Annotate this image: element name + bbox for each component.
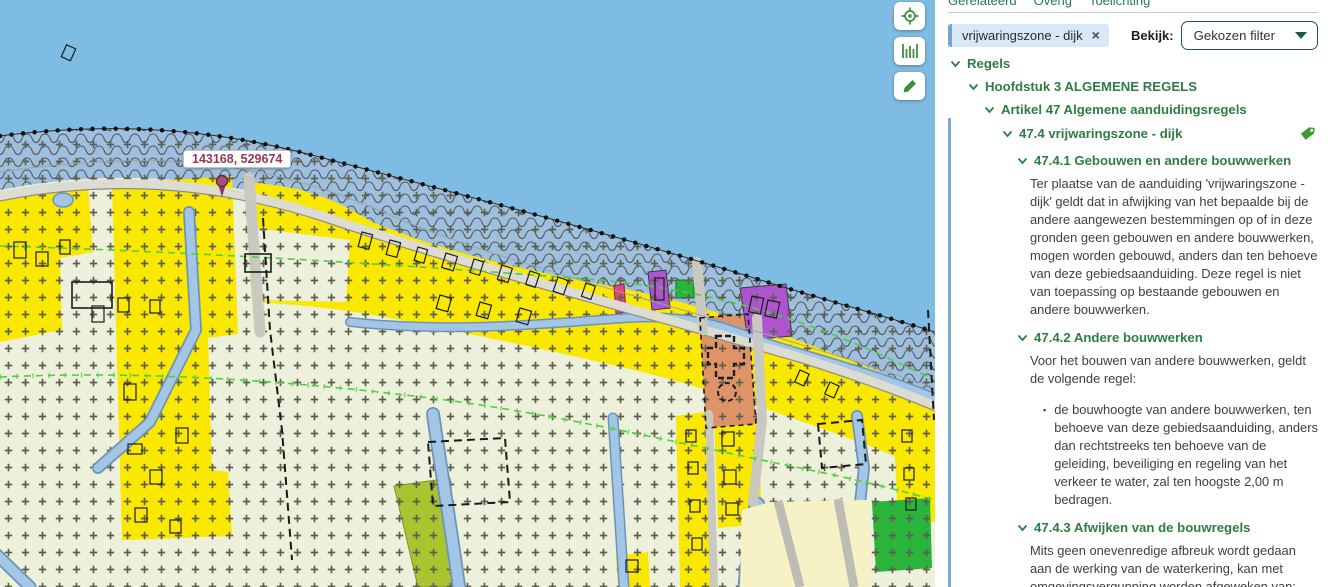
filter-chip-label: vrijwaringszone - dijk [962,28,1083,43]
zoning-map [0,0,935,587]
section-47-4-3-heading[interactable]: 47.4.3 Afwijken van de bouwregels [1017,520,1318,535]
map-toolbar [894,2,925,100]
view-label: Bekijk: [1131,28,1174,43]
profile-chart-icon [901,42,919,60]
section-47-4-2-bullet: ▪ de bouwhoogte van andere bouwwerken, t… [1043,401,1318,509]
view-filter-select[interactable]: Gekozen filter [1181,21,1318,50]
draw-button[interactable] [894,72,925,100]
tab-toelichting[interactable]: Toelichting [1089,0,1150,8]
section-47-4-2-heading[interactable]: 47.4.2 Andere bouwwerken [1017,330,1318,345]
tree-item-label: Hoofdstuk 3 ALGEMENE REGELS [985,79,1197,94]
tree-item-hoofdstuk3[interactable]: Hoofdstuk 3 ALGEMENE REGELS [968,79,1318,94]
bullet-marker: ▪ [1043,401,1046,509]
tab-gerelateerd[interactable]: Gerelateerd [948,0,1017,8]
measure-button[interactable] [894,37,925,65]
active-section-indicator [948,118,951,587]
section-47-4-1-body: Ter plaatse van de aanduiding 'vrijwarin… [1030,175,1318,319]
chevron-down-icon [968,83,979,91]
remove-filter-icon[interactable]: × [1092,29,1100,41]
filter-row: vrijwaringszone - dijk × Bekijk: Gekozen… [948,22,1318,48]
chevron-down-icon [984,106,995,114]
bullet-text: de bouwhoogte van andere bouwwerken, ten… [1054,401,1318,509]
map-canvas[interactable]: 143168, 529674 [0,0,935,587]
view-filter-value: Gekozen filter [1194,28,1275,43]
coordinate-label: 143168, 529674 [183,150,291,168]
section-title: 47.4.3 Afwijken van de bouwregels [1034,520,1250,535]
crosshair-icon [901,7,919,25]
chevron-down-icon [1017,524,1028,532]
chevron-down-icon [1002,130,1013,138]
locate-button[interactable] [894,2,925,30]
tree-item-artikel47[interactable]: Artikel 47 Algemene aanduidingsregels [984,102,1318,117]
tree-item-label: Artikel 47 Algemene aanduidingsregels [1001,102,1247,117]
active-filter-chip: vrijwaringszone - dijk × [948,24,1109,47]
tree-item-47-4[interactable]: 47.4 vrijwaringszone - dijk [1002,125,1318,142]
section-47-4-1-heading[interactable]: 47.4.1 Gebouwen en andere bouwwerken [1017,153,1318,168]
tree-item-label: Regels [967,56,1010,71]
chevron-down-icon [1017,157,1028,165]
panel-tabs: Gerelateerd Overig Toelichting [948,0,1318,13]
section-title: 47.4.2 Andere bouwwerken [1034,330,1203,345]
chevron-down-icon [1017,334,1028,342]
tree-item-regels[interactable]: Regels [950,56,1318,71]
section-47-4-3-intro: Mits geen onevenredige afbreuk wordt ged… [1030,542,1318,587]
section-47-4-2-intro: Voor het bouwen van andere bouwwerken, g… [1030,352,1318,388]
tree-item-label: 47.4 vrijwaringszone - dijk [1019,126,1182,141]
section-title: 47.4.1 Gebouwen en andere bouwwerken [1034,153,1291,168]
tab-overig[interactable]: Overig [1034,0,1072,8]
chevron-down-icon [1295,32,1307,39]
pale-area [740,499,872,587]
pencil-icon [901,77,919,95]
app-window: 143168, 529674 [0,0,1332,587]
chevron-down-icon [950,60,961,68]
regulations-panel: Gerelateerd Overig Toelichting vrijwarin… [935,0,1332,587]
tag-icon[interactable] [1299,125,1316,142]
